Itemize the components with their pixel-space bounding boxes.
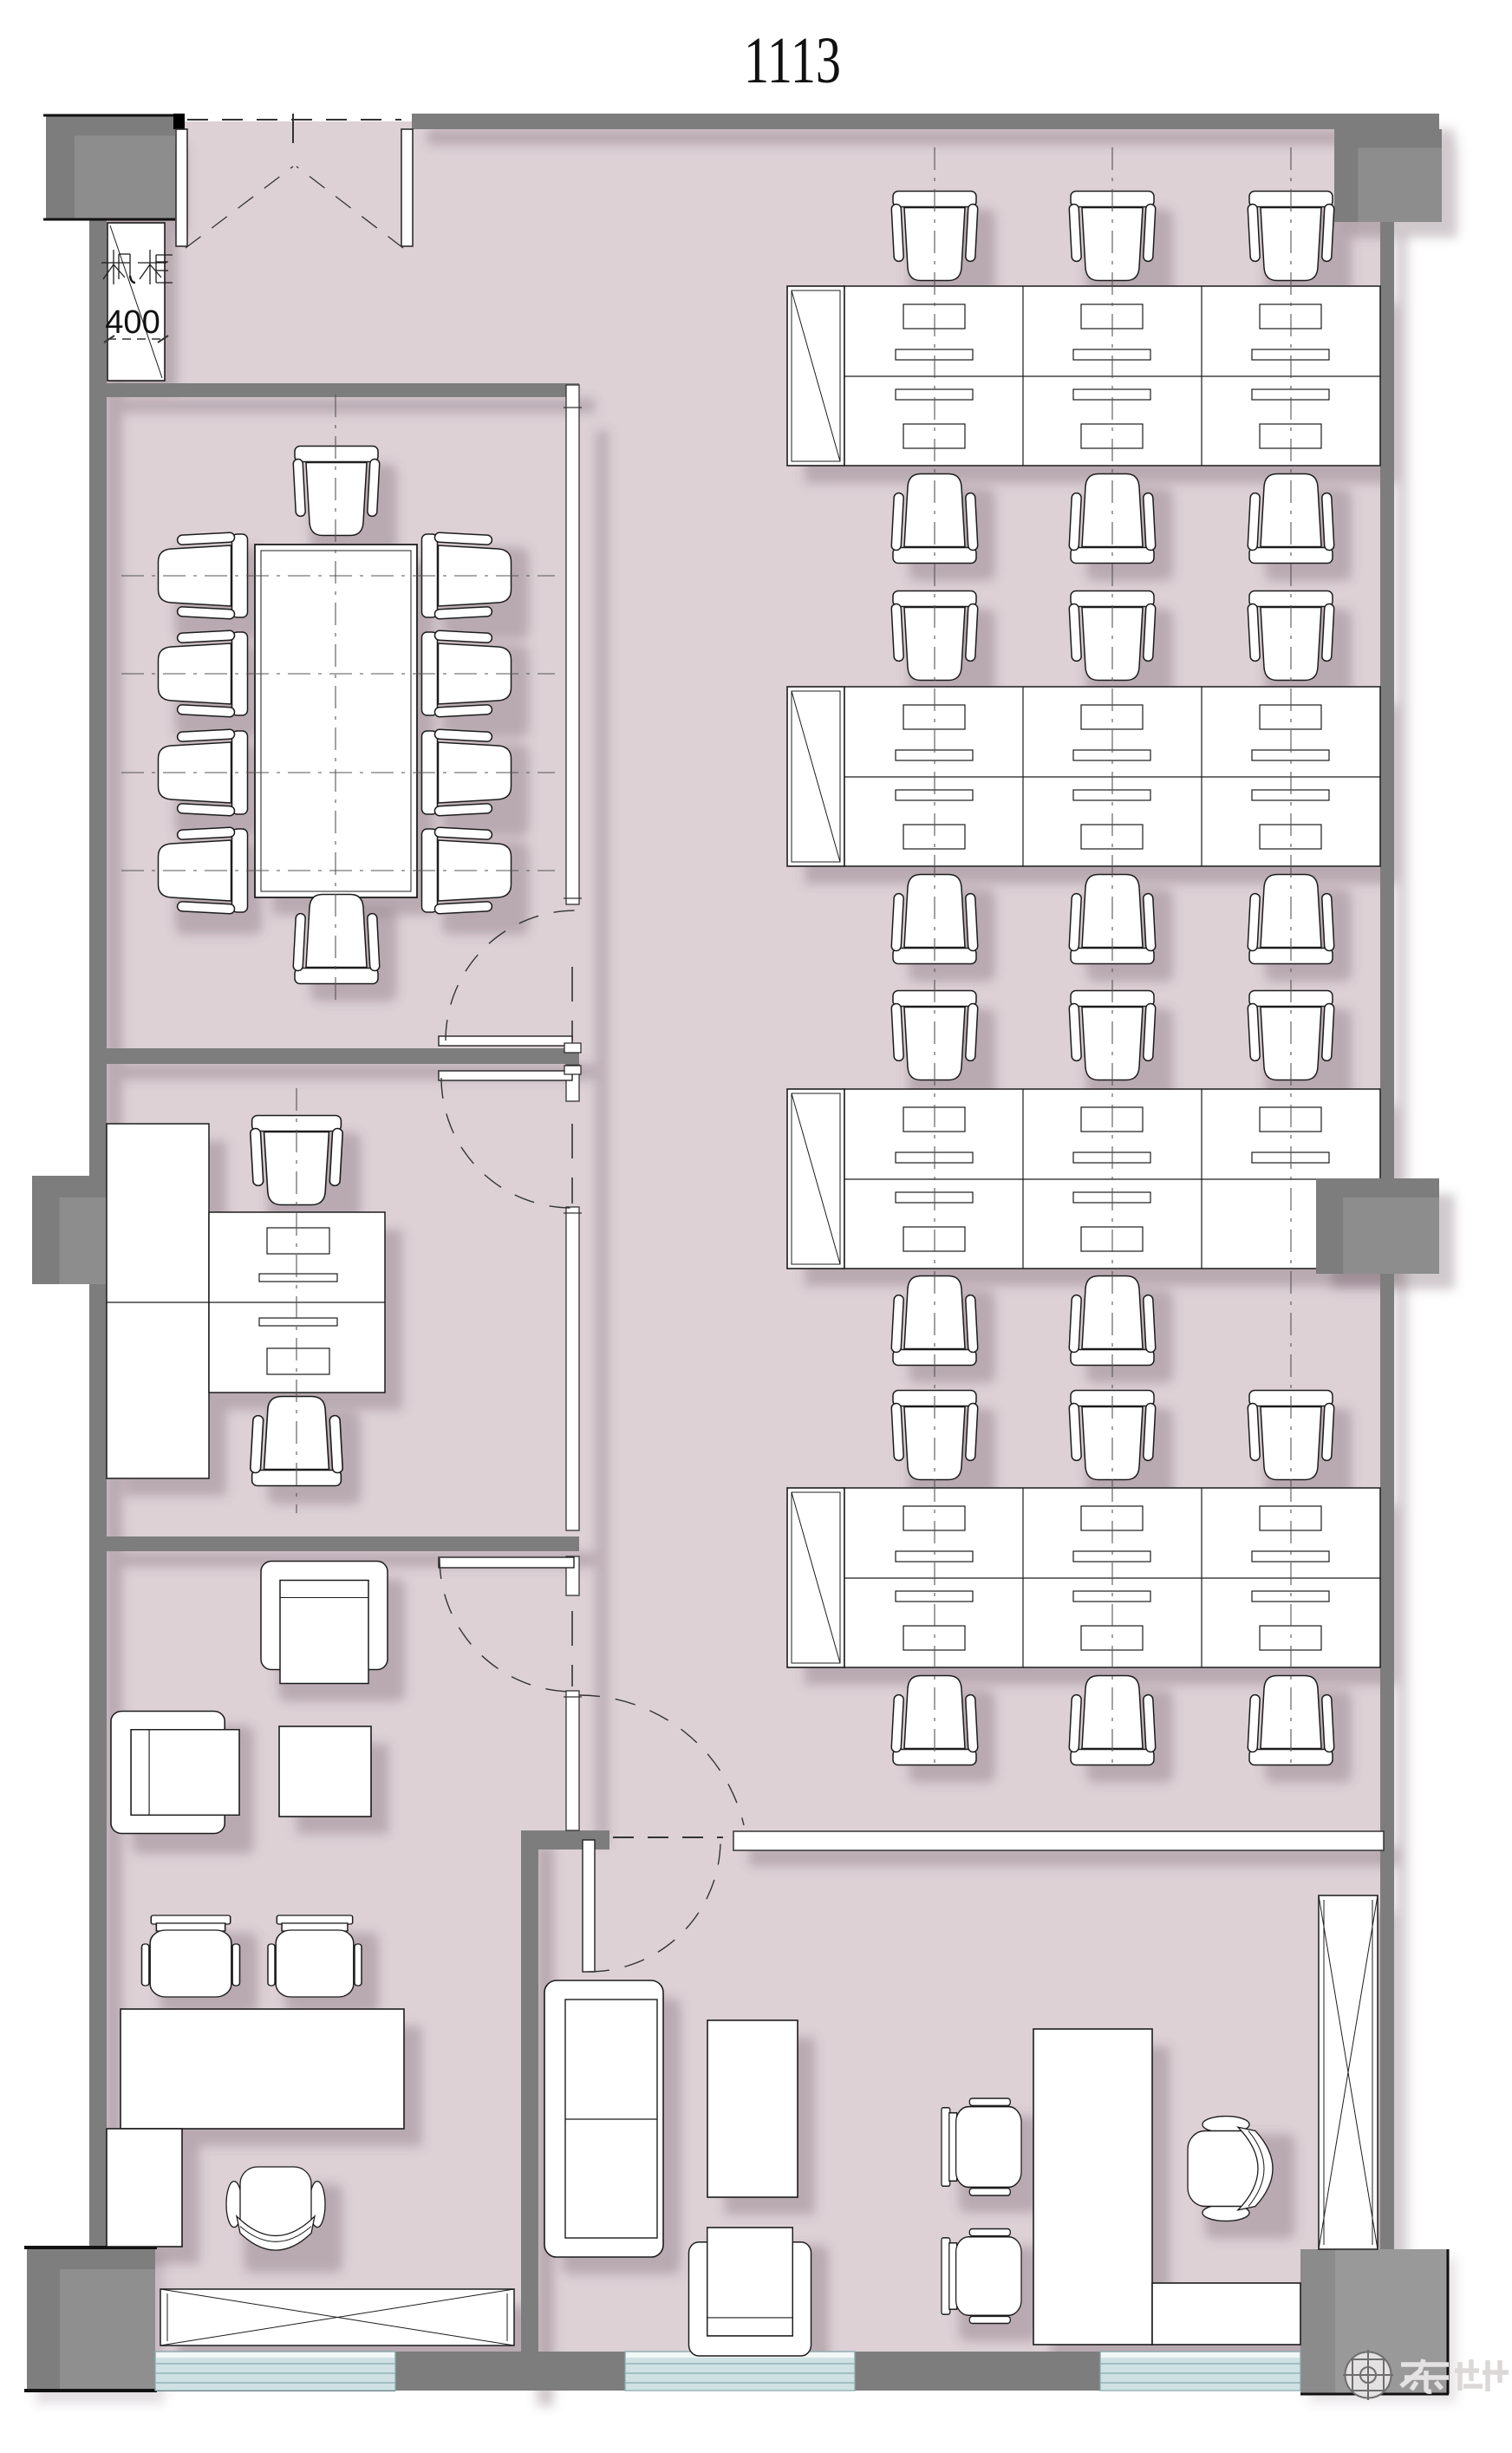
svg-text:1113: 1113 — [744, 24, 841, 97]
